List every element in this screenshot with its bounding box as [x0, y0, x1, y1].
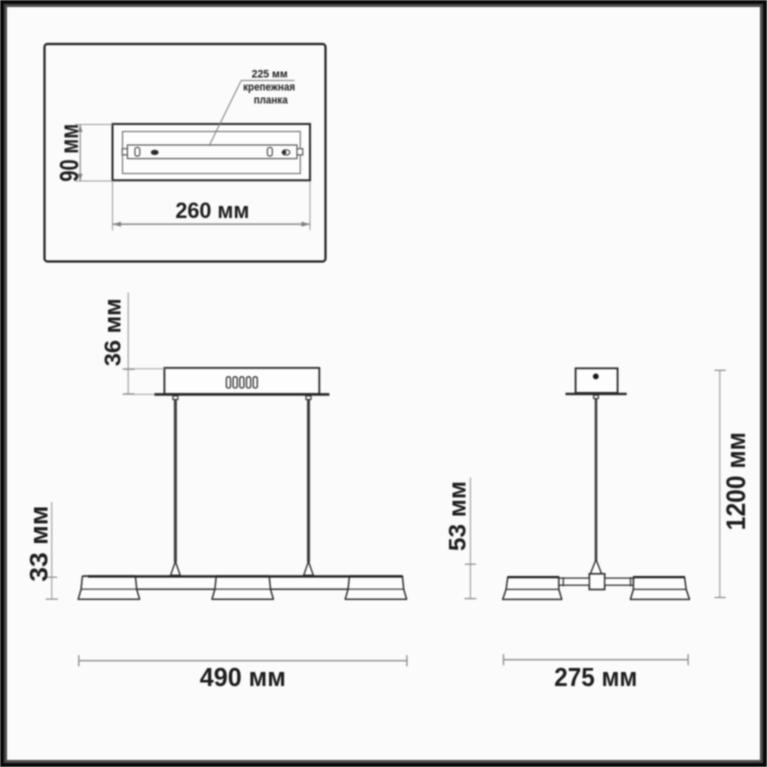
svg-text:крепежная: крепежная	[243, 82, 295, 94]
svg-text:90 мм: 90 мм	[54, 124, 84, 182]
svg-text:53 мм: 53 мм	[444, 481, 471, 551]
svg-text:490 мм: 490 мм	[200, 664, 286, 692]
svg-text:планка: планка	[254, 94, 289, 106]
svg-text:225 мм: 225 мм	[252, 68, 288, 80]
svg-text:33 мм: 33 мм	[26, 506, 54, 582]
svg-text:1200 мм: 1200 мм	[721, 432, 751, 530]
svg-text:260 мм: 260 мм	[175, 198, 249, 223]
svg-text:36 мм: 36 мм	[100, 298, 126, 366]
svg-text:275 мм: 275 мм	[554, 664, 637, 692]
